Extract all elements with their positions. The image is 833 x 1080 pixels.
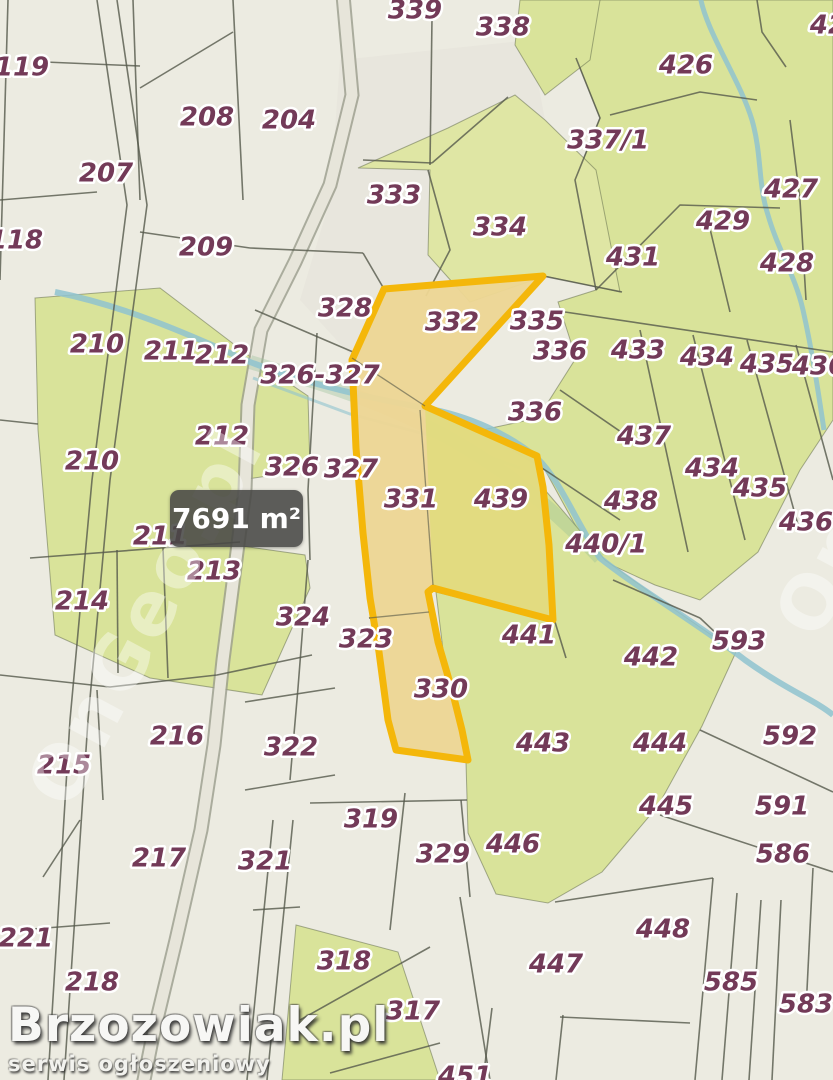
parcel-label-216: 216 xyxy=(150,722,204,752)
parcel-label-324: 324 xyxy=(276,603,330,633)
parcel-label-586: 586 xyxy=(756,840,810,870)
parcel-label-209: 209 xyxy=(179,233,233,263)
parcel-label-321: 321 xyxy=(238,847,292,877)
parcel-label-446: 446 xyxy=(485,830,540,860)
parcel-label-317: 317 xyxy=(386,997,441,1027)
parcel-label-448: 448 xyxy=(635,915,690,945)
parcel-label-592: 592 xyxy=(763,722,817,752)
parcel-label-426: 426 xyxy=(658,51,713,81)
parcel-label-447: 447 xyxy=(528,950,584,980)
parcel-label-212: 212 xyxy=(195,422,249,452)
parcel-label-331: 331 xyxy=(384,485,438,515)
parcel-label-217: 217 xyxy=(132,844,187,874)
parcel-label-435: 435 xyxy=(732,474,787,504)
boundary-line xyxy=(460,897,490,1080)
parcel-label-204: 204 xyxy=(262,106,316,136)
parcel-label-326: 326 xyxy=(265,453,319,483)
parcel-label-339: 339 xyxy=(388,0,442,26)
parcel-label-119: 119 xyxy=(0,53,49,83)
parcel-label-335: 335 xyxy=(510,307,564,337)
parcel-label-334: 334 xyxy=(473,213,527,243)
parcel-label-436: 436 xyxy=(778,508,833,538)
parcel-label-336: 336 xyxy=(533,337,587,367)
parcel-label-319: 319 xyxy=(344,805,398,835)
parcel-label-427: 427 xyxy=(763,175,819,205)
parcel-label-593: 593 xyxy=(712,627,766,657)
boundary-line xyxy=(140,32,233,88)
parcel-label-210: 210 xyxy=(70,330,124,360)
parcel-label-585: 585 xyxy=(704,968,758,998)
parcel-label-328: 328 xyxy=(318,294,372,324)
parcel-label-322: 322 xyxy=(264,733,318,763)
parcel-label-213: 213 xyxy=(187,557,241,587)
site-watermark-title: Brzozowiak.pl xyxy=(8,1002,389,1049)
boundary-line xyxy=(560,1017,690,1023)
parcel-label-329: 329 xyxy=(416,840,470,870)
parcel-label-436: 436 xyxy=(791,352,833,382)
parcel-label-583: 583 xyxy=(779,990,833,1020)
parcel-label-118: 118 xyxy=(0,226,43,256)
parcel-label-435: 435 xyxy=(739,350,794,380)
boundary-line xyxy=(253,907,300,910)
parcel-label-211: 211 xyxy=(144,337,198,367)
boundary-line xyxy=(133,0,140,200)
parcel-label-210: 210 xyxy=(65,447,119,477)
parcel-label-443: 443 xyxy=(515,729,570,759)
parcel-label-326-327: 326-327 xyxy=(260,361,380,391)
parcel-label-437: 437 xyxy=(616,422,672,452)
parcel-label-332: 332 xyxy=(425,308,479,338)
parcel-label-214: 214 xyxy=(55,587,109,617)
parcel-label-333: 333 xyxy=(367,181,421,211)
parcel-label-442: 442 xyxy=(623,643,678,673)
parcel-label-428: 428 xyxy=(759,249,814,279)
parcel-label-42: 42 xyxy=(809,11,833,41)
boundary-line xyxy=(97,690,103,800)
parcel-label-439: 439 xyxy=(473,485,528,515)
site-watermark-subtitle: serwis ogłoszeniowy xyxy=(8,1052,271,1076)
parcel-label-221: 221 xyxy=(0,924,53,954)
parcel-label-591: 591 xyxy=(755,792,809,822)
parcel-label-338: 338 xyxy=(476,13,530,43)
boundary-line xyxy=(556,1015,563,1080)
cadastral-map[interactable]: 11920820420733933842642337/1118209427429… xyxy=(0,0,833,1080)
parcel-label-451: 451 xyxy=(437,1062,492,1080)
boundary-line xyxy=(233,0,243,200)
map-canvas: 11920820420733933842642337/1118209427429… xyxy=(0,0,833,1080)
boundary-line xyxy=(0,420,38,424)
parcel-label-429: 429 xyxy=(695,207,750,237)
parcel-label-431: 431 xyxy=(605,243,660,273)
parcel-label-215: 215 xyxy=(37,751,91,781)
parcel-label-218: 218 xyxy=(65,968,119,998)
parcel-label-327: 327 xyxy=(324,455,379,485)
area-measurement-badge: 7691 m² xyxy=(170,490,303,547)
boundary-line xyxy=(117,550,118,673)
parcel-label-434: 434 xyxy=(679,343,734,373)
parcel-label-440/1: 440/1 xyxy=(564,530,647,560)
parcel-label-330: 330 xyxy=(414,675,468,705)
parcel-label-318: 318 xyxy=(317,947,371,977)
boundary-line xyxy=(0,192,97,200)
parcel-label-434: 434 xyxy=(684,454,739,484)
parcel-label-208: 208 xyxy=(180,103,234,133)
parcel-label-323: 323 xyxy=(339,625,393,655)
parcel-label-336: 336 xyxy=(508,398,562,428)
parcel-label-441: 441 xyxy=(501,621,556,651)
parcel-label-445: 445 xyxy=(638,792,693,822)
boundary-line xyxy=(310,800,467,803)
parcel-label-444: 444 xyxy=(632,729,687,759)
parcel-label-212: 212 xyxy=(195,341,249,371)
parcel-label-433: 433 xyxy=(610,336,665,366)
parcel-label-207: 207 xyxy=(79,159,134,189)
parcel-label-337/1: 337/1 xyxy=(567,126,649,156)
area-measurement-text: 7691 m² xyxy=(172,502,301,535)
parcel-label-438: 438 xyxy=(603,487,658,517)
